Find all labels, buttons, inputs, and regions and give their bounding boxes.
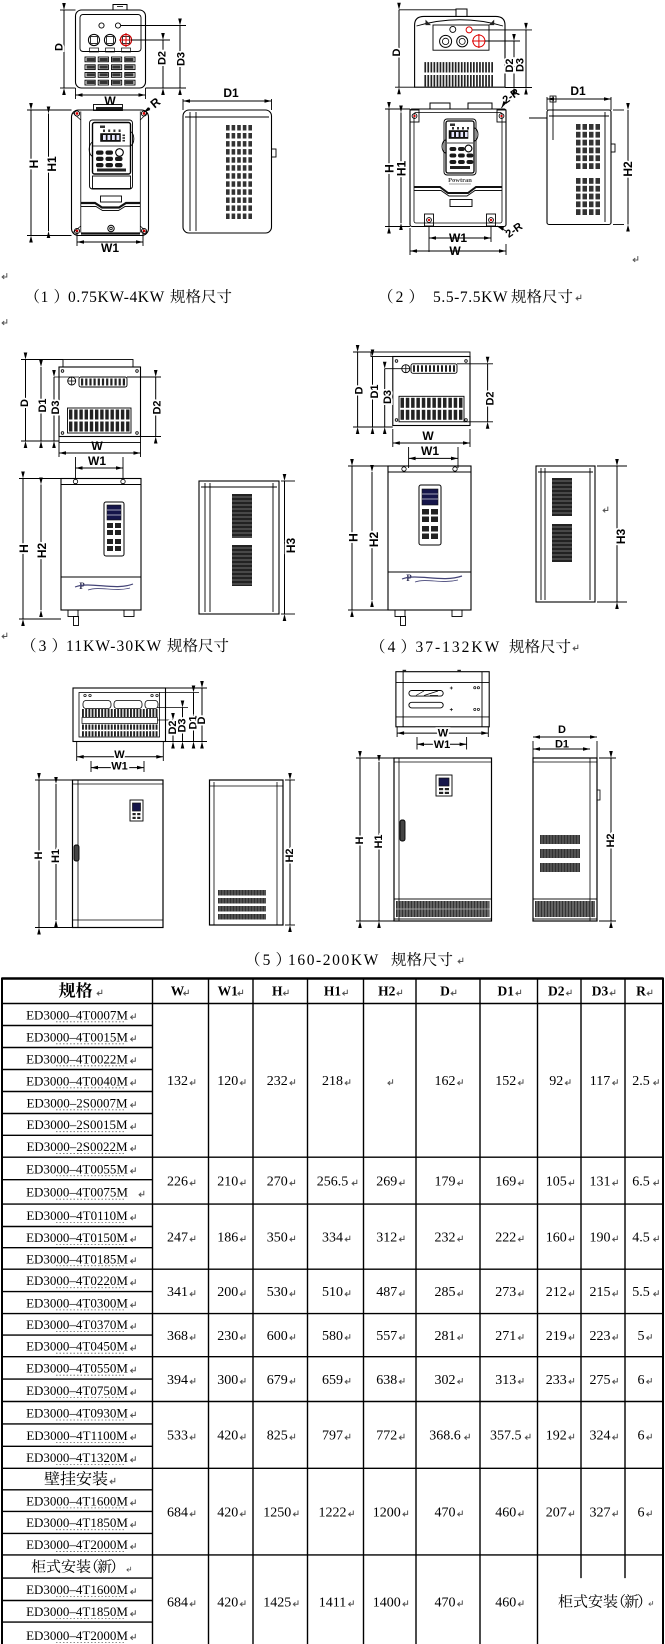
svg-text:D3: D3: [176, 52, 188, 66]
svg-text:120: 120: [217, 1074, 238, 1089]
svg-text:ED3000–4T0750M: ED3000–4T0750M: [26, 1383, 128, 1398]
svg-text:D: D: [354, 386, 366, 394]
svg-text:W1: W1: [88, 454, 106, 468]
svg-text:ED3000–4T0110M: ED3000–4T0110M: [26, 1208, 128, 1223]
svg-text:302: 302: [435, 1373, 456, 1388]
svg-text:W: W: [114, 749, 125, 761]
svg-text:ED3000–4T0550M: ED3000–4T0550M: [26, 1361, 128, 1376]
svg-text:W1: W1: [101, 241, 119, 255]
svg-text:11KW-30KW: 11KW-30KW: [66, 638, 162, 655]
svg-text:5: 5: [263, 952, 271, 969]
svg-text:533: 533: [167, 1429, 188, 1444]
svg-text:218: 218: [322, 1074, 343, 1089]
svg-text:679: 679: [267, 1373, 288, 1388]
svg-text:638: 638: [376, 1373, 397, 1388]
svg-text:W1: W1: [434, 739, 451, 751]
svg-text:269: 269: [376, 1174, 397, 1189]
svg-text:6: 6: [638, 1505, 645, 1520]
svg-text:152: 152: [495, 1074, 516, 1089]
svg-text:ED3000–4T1850M: ED3000–4T1850M: [26, 1515, 128, 1530]
svg-text:162: 162: [435, 1074, 456, 1089]
svg-text:300: 300: [217, 1373, 238, 1388]
svg-text:131: 131: [590, 1174, 611, 1189]
svg-text:368.6: 368.6: [429, 1429, 461, 1444]
svg-text:357.5: 357.5: [490, 1429, 522, 1444]
svg-text:6.5: 6.5: [632, 1174, 650, 1189]
svg-text:W1: W1: [218, 984, 239, 999]
svg-text:232: 232: [267, 1074, 288, 1089]
svg-text:ED3000–4T0150M: ED3000–4T0150M: [26, 1230, 128, 1245]
svg-text:ED3000–2S0007M: ED3000–2S0007M: [26, 1095, 128, 1110]
svg-text:232: 232: [435, 1230, 456, 1245]
svg-text:ED3000–4T2000M: ED3000–4T2000M: [26, 1537, 128, 1552]
svg-text:394: 394: [167, 1373, 188, 1388]
svg-text:ED3000–4T1100M: ED3000–4T1100M: [26, 1428, 128, 1443]
svg-text:6: 6: [638, 1373, 645, 1388]
svg-text:420: 420: [217, 1429, 238, 1444]
svg-text:H1: H1: [50, 849, 62, 863]
svg-text:169: 169: [495, 1174, 516, 1189]
svg-text:659: 659: [322, 1373, 343, 1388]
svg-text:215: 215: [590, 1285, 611, 1300]
svg-text:ED3000–4T0040M: ED3000–4T0040M: [26, 1073, 128, 1088]
svg-text:H2: H2: [378, 984, 396, 999]
svg-text:334: 334: [322, 1230, 343, 1245]
svg-text:D3: D3: [515, 58, 527, 72]
svg-text:D1: D1: [223, 86, 239, 100]
svg-text:D: D: [391, 48, 403, 56]
svg-text:192: 192: [546, 1429, 567, 1444]
svg-text:312: 312: [376, 1230, 397, 1245]
svg-text:105: 105: [546, 1174, 567, 1189]
svg-text:487: 487: [376, 1285, 397, 1300]
svg-text:ED3000–4T1320M: ED3000–4T1320M: [26, 1450, 128, 1465]
svg-text:D1: D1: [555, 739, 569, 751]
svg-text:ED3000–4T0930M: ED3000–4T0930M: [26, 1406, 128, 1421]
svg-text:H2: H2: [35, 543, 49, 559]
svg-text:190: 190: [590, 1230, 611, 1245]
svg-text:ED3000–4T2000M: ED3000–4T2000M: [26, 1628, 128, 1643]
svg-text:W: W: [422, 429, 434, 443]
svg-text:H2: H2: [621, 161, 635, 177]
svg-text:0.75KW-4KW: 0.75KW-4KW: [68, 289, 165, 306]
svg-text:H: H: [33, 851, 45, 859]
svg-text:420: 420: [217, 1595, 238, 1610]
svg-text:2.5: 2.5: [632, 1074, 650, 1089]
svg-text:ED3000–4T0015M: ED3000–4T0015M: [26, 1029, 128, 1044]
svg-text:420: 420: [217, 1505, 238, 1520]
svg-text:341: 341: [167, 1285, 188, 1300]
svg-text:3: 3: [39, 638, 47, 655]
svg-text:132: 132: [167, 1074, 188, 1089]
svg-text:275: 275: [590, 1373, 611, 1388]
svg-text:212: 212: [546, 1285, 567, 1300]
svg-text:825: 825: [267, 1429, 288, 1444]
svg-text:270: 270: [267, 1174, 288, 1189]
svg-text:1425: 1425: [263, 1595, 291, 1610]
svg-text:ED3000–4T0370M: ED3000–4T0370M: [26, 1317, 128, 1332]
svg-text:530: 530: [267, 1285, 288, 1300]
svg-text:1: 1: [41, 289, 49, 306]
svg-text:2: 2: [396, 289, 404, 306]
svg-text:160-200KW: 160-200KW: [288, 952, 380, 969]
svg-text:186: 186: [217, 1230, 238, 1245]
svg-text:D: D: [440, 984, 450, 999]
svg-text:ED3000–4T0075M: ED3000–4T0075M: [26, 1185, 128, 1200]
svg-text:160: 160: [546, 1230, 567, 1245]
svg-text:1400: 1400: [373, 1595, 401, 1610]
svg-text:557: 557: [376, 1329, 397, 1344]
svg-text:580: 580: [322, 1329, 343, 1344]
svg-text:ED3000–4T1850M: ED3000–4T1850M: [26, 1604, 128, 1619]
svg-text:179: 179: [435, 1174, 456, 1189]
svg-text:D: D: [196, 716, 208, 724]
svg-text:797: 797: [322, 1429, 343, 1444]
svg-text:1250: 1250: [263, 1505, 291, 1520]
svg-text:ED3000–4T0300M: ED3000–4T0300M: [26, 1295, 128, 1310]
svg-text:ED3000–4T0220M: ED3000–4T0220M: [26, 1273, 128, 1288]
svg-text:ED3000–4T0022M: ED3000–4T0022M: [26, 1051, 128, 1066]
svg-text:460: 460: [495, 1595, 516, 1610]
svg-text:ED3000–4T1600M: ED3000–4T1600M: [26, 1582, 128, 1597]
svg-text:Powtran: Powtran: [448, 177, 472, 184]
svg-text:W1: W1: [449, 231, 467, 245]
svg-text:ED3000–4T0055M: ED3000–4T0055M: [26, 1161, 128, 1176]
svg-text:H: H: [347, 533, 361, 542]
svg-text:H: H: [17, 544, 31, 553]
svg-text:684: 684: [167, 1505, 188, 1520]
svg-text:H: H: [272, 984, 283, 999]
svg-text:1411: 1411: [319, 1595, 346, 1610]
svg-text:281: 281: [435, 1329, 456, 1344]
svg-text:2-R: 2-R: [504, 221, 525, 241]
svg-text:4.5: 4.5: [632, 1230, 650, 1245]
svg-text:H1: H1: [324, 984, 342, 999]
svg-text:684: 684: [167, 1595, 188, 1610]
svg-text:37-132KW: 37-132KW: [416, 639, 502, 656]
svg-text:285: 285: [435, 1285, 456, 1300]
svg-text:350: 350: [267, 1230, 288, 1245]
svg-text:92: 92: [549, 1074, 563, 1089]
svg-text:D3: D3: [382, 390, 394, 404]
svg-text:D3: D3: [50, 400, 62, 414]
svg-text:223: 223: [590, 1329, 611, 1344]
svg-text:W1: W1: [111, 761, 128, 773]
svg-text:H1: H1: [373, 834, 385, 848]
svg-text:W: W: [91, 439, 103, 453]
svg-text:D: D: [19, 399, 31, 407]
svg-text:ED3000–4T0450M: ED3000–4T0450M: [26, 1339, 128, 1354]
svg-text:1222: 1222: [319, 1505, 347, 1520]
svg-text:4: 4: [388, 639, 396, 656]
svg-text:273: 273: [495, 1285, 516, 1300]
svg-text:210: 210: [217, 1174, 238, 1189]
svg-text:D2: D2: [548, 984, 565, 999]
svg-text:H3: H3: [284, 538, 298, 554]
svg-text:D3: D3: [592, 984, 609, 999]
svg-text:ED3000–2S0015M: ED3000–2S0015M: [26, 1117, 128, 1132]
svg-text:1200: 1200: [373, 1505, 401, 1520]
svg-text:460: 460: [495, 1505, 516, 1520]
svg-text:W: W: [449, 244, 461, 258]
svg-text:W1: W1: [421, 444, 439, 458]
svg-text:D: D: [558, 724, 566, 736]
svg-text:207: 207: [546, 1505, 567, 1520]
svg-text:5.5-7.5KW: 5.5-7.5KW: [433, 289, 508, 306]
svg-text:ED3000–4T0007M: ED3000–4T0007M: [26, 1007, 128, 1022]
svg-text:D2: D2: [485, 391, 497, 405]
svg-text:6: 6: [638, 1429, 645, 1444]
svg-text:313: 313: [495, 1373, 516, 1388]
svg-text:5.5: 5.5: [632, 1285, 650, 1300]
svg-text:368: 368: [167, 1329, 188, 1344]
svg-text:ED3000–4T0185M: ED3000–4T0185M: [26, 1251, 128, 1266]
svg-text:256.5: 256.5: [317, 1174, 349, 1189]
svg-text:271: 271: [495, 1329, 516, 1344]
svg-text:5: 5: [638, 1329, 645, 1344]
svg-text:D2: D2: [157, 51, 169, 65]
svg-text:R: R: [148, 95, 164, 112]
svg-text:H1: H1: [395, 161, 409, 177]
svg-text:D1: D1: [498, 984, 515, 999]
svg-text:600: 600: [267, 1329, 288, 1344]
svg-text:510: 510: [322, 1285, 343, 1300]
svg-text:D1: D1: [570, 84, 586, 98]
svg-text:222: 222: [495, 1230, 516, 1245]
svg-text:H2: H2: [605, 833, 617, 847]
svg-text:W: W: [104, 94, 116, 108]
svg-text:230: 230: [217, 1329, 238, 1344]
svg-text:470: 470: [435, 1595, 456, 1610]
svg-text:324: 324: [590, 1429, 611, 1444]
svg-text:D1: D1: [369, 384, 381, 398]
svg-text:233: 233: [546, 1373, 567, 1388]
svg-text:470: 470: [435, 1505, 456, 1520]
svg-text:H2: H2: [367, 532, 381, 548]
svg-text:H: H: [354, 836, 366, 844]
svg-text:ED3000–4T1600M: ED3000–4T1600M: [26, 1493, 128, 1508]
svg-text:226: 226: [167, 1174, 188, 1189]
svg-text:772: 772: [376, 1429, 397, 1444]
svg-text:W: W: [438, 728, 449, 740]
svg-text:219: 219: [546, 1329, 567, 1344]
svg-text:117: 117: [590, 1074, 610, 1089]
svg-text:D: D: [54, 43, 66, 51]
svg-text:D1: D1: [37, 398, 49, 412]
svg-text:200: 200: [217, 1285, 238, 1300]
svg-text:327: 327: [590, 1505, 611, 1520]
svg-text:H2: H2: [284, 848, 296, 862]
svg-text:H3: H3: [614, 529, 628, 545]
svg-text:D2: D2: [152, 400, 164, 414]
svg-text:W: W: [171, 984, 185, 999]
svg-text:247: 247: [167, 1230, 188, 1245]
svg-text:H1: H1: [45, 156, 59, 172]
svg-text:ED3000–2S0022M: ED3000–2S0022M: [26, 1139, 128, 1154]
svg-text:H: H: [27, 160, 41, 169]
svg-text:R: R: [636, 984, 646, 999]
